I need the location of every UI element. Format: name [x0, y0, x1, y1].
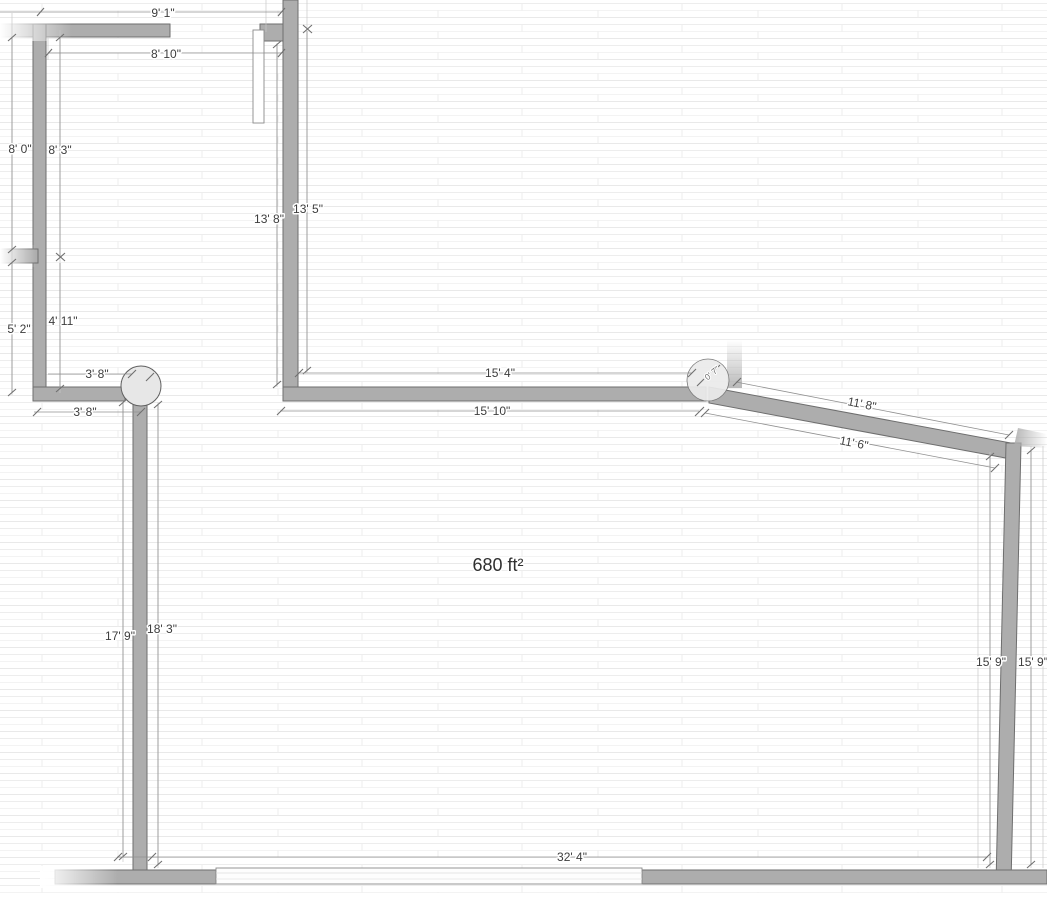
dim-label-left-lower-outer: 5' 2": [7, 322, 30, 336]
wall-left-room-bottom[interactable]: [33, 387, 125, 401]
dim-label-passage-lower: 3' 8": [73, 405, 96, 419]
floor-plan-canvas: 9' 1" 8' 10" 8' 0" 8' 3" 13' 8" 13' 5": [0, 0, 1047, 910]
dim-label-top-inner: 8' 10": [151, 47, 181, 61]
wall-interior-vertical[interactable]: [133, 398, 147, 872]
dim-label-interior-left: 17' 9": [105, 629, 135, 643]
dim-label-mid-inner: 15' 4": [485, 366, 515, 380]
dim-label-right-outer: 15' 9": [1018, 655, 1047, 669]
door-leaf[interactable]: [253, 30, 264, 123]
dim-label-left-upper-inner: 8' 3": [48, 143, 71, 157]
dim-label-left-lower-inner: 4' 11": [48, 314, 77, 328]
dim-label-room1-right-inner: 13' 8": [254, 212, 284, 226]
window-bottom[interactable]: [216, 868, 642, 884]
dim-label-top-outer: 9' 1": [151, 6, 174, 20]
room-area-label[interactable]: 680 ft²: [472, 555, 523, 575]
dim-label-bottom: 32' 4": [557, 850, 587, 864]
dim-label-mid-outer: 15' 10": [474, 404, 511, 418]
wall-left-room-right[interactable]: [283, 0, 298, 401]
exterior-area: [0, 893, 1047, 910]
dim-label-passage-upper: 3' 8": [85, 367, 108, 381]
wall-left-exterior[interactable]: [33, 24, 46, 401]
dim-label-right-inner: 15' 9": [976, 655, 1006, 669]
dim-label-left-upper-outer: 8' 0": [8, 142, 31, 156]
column-round-left[interactable]: [121, 366, 161, 406]
wall-bottom-right[interactable]: [642, 870, 1047, 884]
dim-label-interior-right: 18' 3": [147, 622, 177, 636]
wall-mid-horizontal[interactable]: [283, 387, 706, 401]
dim-label-room1-right-outer: 13' 5": [293, 202, 323, 216]
floor-texture: [0, 0, 1047, 893]
floor-plan-stage: 9' 1" 8' 10" 8' 0" 8' 3" 13' 8" 13' 5": [0, 0, 1047, 910]
